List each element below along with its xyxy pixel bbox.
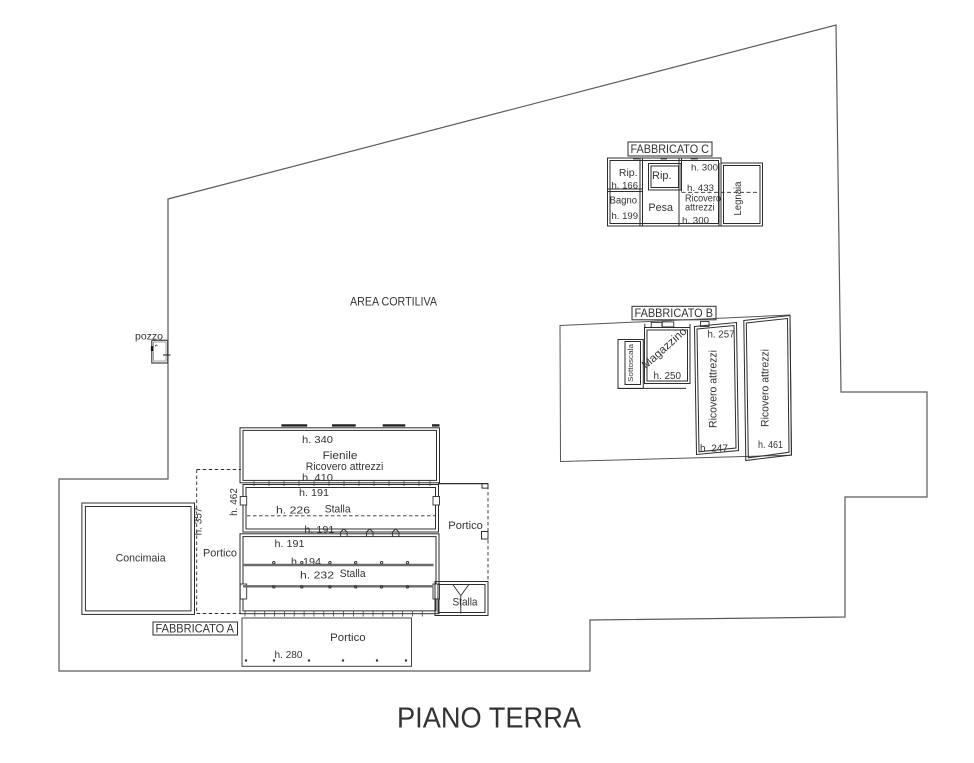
svg-text:Bagno: Bagno — [610, 195, 638, 206]
svg-text:h. 300: h. 300 — [691, 163, 718, 174]
svg-text:Portico: Portico — [448, 520, 483, 532]
svg-text:h. 433: h. 433 — [687, 183, 714, 194]
svg-text:h. 199: h. 199 — [612, 211, 639, 222]
svg-text:h. 191: h. 191 — [304, 525, 334, 536]
svg-text:Portico: Portico — [203, 548, 237, 560]
svg-text:attrezzi: attrezzi — [685, 203, 715, 214]
svg-text:h. 232: h. 232 — [300, 571, 335, 582]
svg-text:Ricovero attrezzi: Ricovero attrezzi — [760, 349, 772, 427]
svg-text:Rip.: Rip. — [619, 167, 638, 179]
svg-text:pozzo: pozzo — [135, 332, 163, 343]
svg-text:Stalla: Stalla — [325, 504, 352, 516]
svg-text:h. 461: h. 461 — [758, 440, 783, 451]
svg-text:FABBRICATO A: FABBRICATO A — [156, 622, 235, 636]
svg-text:AREA CORTILIVA: AREA CORTILIVA — [350, 295, 437, 309]
svg-text:PIANO TERRA: PIANO TERRA — [397, 703, 582, 735]
svg-text:Ricovero attrezzi: Ricovero attrezzi — [306, 461, 384, 473]
svg-text:h. 300: h. 300 — [682, 215, 709, 226]
svg-text:Pesa: Pesa — [648, 202, 673, 214]
svg-text:h. 247: h. 247 — [700, 444, 728, 455]
svg-text:h. 357: h. 357 — [194, 507, 205, 535]
svg-text:Legnaia: Legnaia — [733, 181, 744, 215]
svg-text:h. 191: h. 191 — [275, 539, 305, 550]
svg-text:Stalla: Stalla — [453, 597, 479, 609]
svg-text:h. 340: h. 340 — [302, 435, 333, 446]
svg-text:h. 250: h. 250 — [654, 371, 682, 382]
svg-text:h. 280: h. 280 — [275, 650, 303, 661]
svg-text:h. 257: h. 257 — [708, 330, 735, 341]
svg-text:Ricovero attrezzi: Ricovero attrezzi — [708, 350, 720, 428]
svg-text:FABBRICATO C: FABBRICATO C — [631, 142, 710, 156]
svg-text:Rip.: Rip. — [652, 170, 672, 182]
svg-text:Stalla: Stalla — [340, 568, 367, 580]
svg-text:Portico: Portico — [330, 632, 365, 644]
svg-text:FABBRICATO B: FABBRICATO B — [635, 306, 714, 320]
svg-text:h. 166: h. 166 — [612, 180, 639, 191]
svg-text:h. 462: h. 462 — [229, 488, 240, 516]
svg-text:h. 191: h. 191 — [299, 488, 329, 499]
svg-text:Concimaia: Concimaia — [116, 553, 166, 565]
svg-text:h. 226: h. 226 — [276, 505, 311, 516]
svg-text:Sottoscala: Sottoscala — [628, 344, 635, 382]
